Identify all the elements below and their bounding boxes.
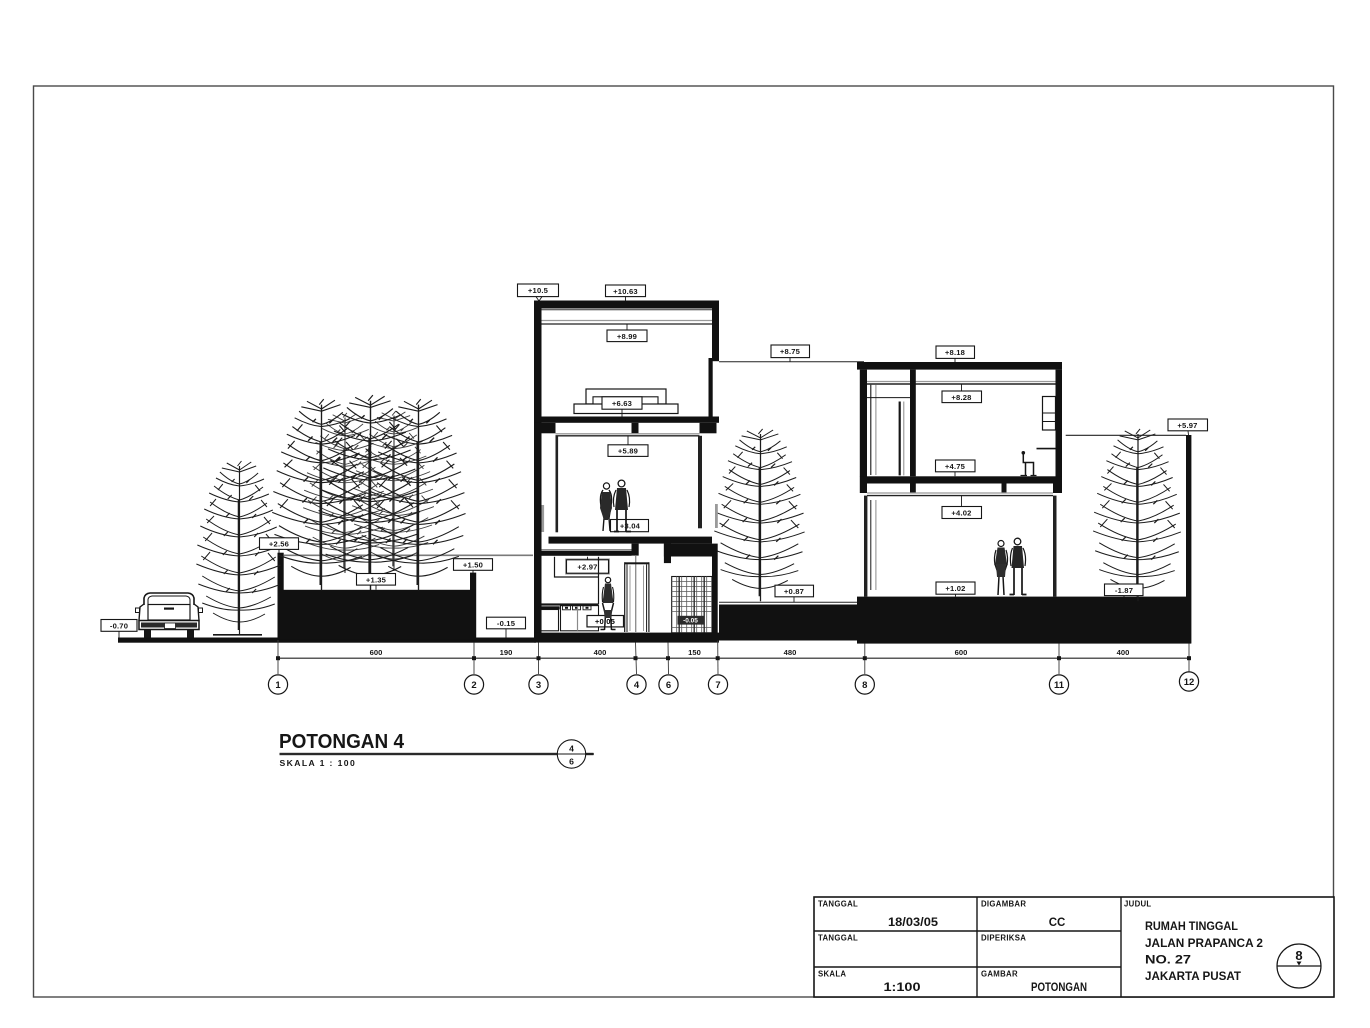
svg-text:+8.28: +8.28 [951,393,971,402]
svg-text:4: 4 [569,744,574,754]
svg-text:+8.75: +8.75 [780,347,801,356]
svg-text:+2.97: +2.97 [577,562,597,571]
svg-text:NO. 27: NO. 27 [1145,953,1191,967]
svg-text:SKALA 1 : 100: SKALA 1 : 100 [280,758,357,768]
svg-text:480: 480 [784,648,797,657]
svg-text:12: 12 [1184,677,1195,688]
svg-text:CC: CC [1049,917,1066,929]
svg-text:+10.63: +10.63 [613,287,638,296]
svg-text:GAMBAR: GAMBAR [981,970,1018,979]
svg-text:1: 1 [275,680,281,691]
svg-text:TANGGAL: TANGGAL [818,934,858,943]
svg-text:11: 11 [1054,680,1065,691]
svg-text:+1.35: +1.35 [366,575,387,584]
svg-text:3: 3 [536,680,541,691]
svg-text:+8.18: +8.18 [945,348,965,357]
svg-text:+0.87: +0.87 [784,587,804,596]
svg-text:600: 600 [370,648,383,657]
svg-text:6: 6 [569,757,574,767]
svg-text:400: 400 [1117,648,1130,657]
svg-text:600: 600 [955,648,968,657]
svg-text:190: 190 [500,648,513,657]
svg-text:-0.70: -0.70 [110,621,128,630]
svg-text:+5.97: +5.97 [1177,421,1197,430]
svg-text:-0.15: -0.15 [497,619,516,628]
svg-text:TANGGAL: TANGGAL [818,900,858,909]
svg-text:SKALA: SKALA [818,970,846,979]
svg-text:JALAN PRAPANCA 2: JALAN PRAPANCA 2 [1145,936,1263,950]
svg-text:8: 8 [862,680,867,691]
svg-text:+1.02: +1.02 [945,584,965,593]
svg-text:+2.56: +2.56 [269,540,289,549]
svg-text:+6.63: +6.63 [612,399,632,408]
svg-text:DIPERIKSA: DIPERIKSA [981,934,1026,943]
svg-text:1:100: 1:100 [884,982,921,994]
svg-text:150: 150 [688,648,701,657]
svg-text:-0.05: -0.05 [683,618,698,625]
svg-text:+4.02: +4.02 [951,508,971,517]
svg-text:JUDUL: JUDUL [1124,900,1152,909]
svg-text:+5.89: +5.89 [618,447,638,456]
svg-text:8: 8 [1295,948,1302,963]
svg-text:6: 6 [666,680,671,691]
svg-text:POTONGAN: POTONGAN [1031,982,1087,994]
svg-text:-1.87: -1.87 [1115,586,1133,595]
svg-text:RUMAH TINGGAL: RUMAH TINGGAL [1145,919,1238,933]
svg-text:+8.99: +8.99 [617,332,637,341]
svg-text:+1.50: +1.50 [463,561,483,570]
svg-text:JAKARTA PUSAT: JAKARTA PUSAT [1145,969,1242,983]
svg-text:400: 400 [594,648,607,657]
svg-text:18/03/05: 18/03/05 [888,917,939,929]
svg-text:7: 7 [715,680,720,691]
svg-text:DIGAMBAR: DIGAMBAR [981,900,1026,909]
svg-text:+3.04: +3.04 [620,522,641,531]
svg-text:+10.5: +10.5 [528,286,549,295]
svg-text:POTONGAN 4: POTONGAN 4 [279,731,405,753]
svg-text:4: 4 [634,680,640,691]
svg-text:+4.75: +4.75 [945,462,966,471]
svg-text:2: 2 [471,680,476,691]
